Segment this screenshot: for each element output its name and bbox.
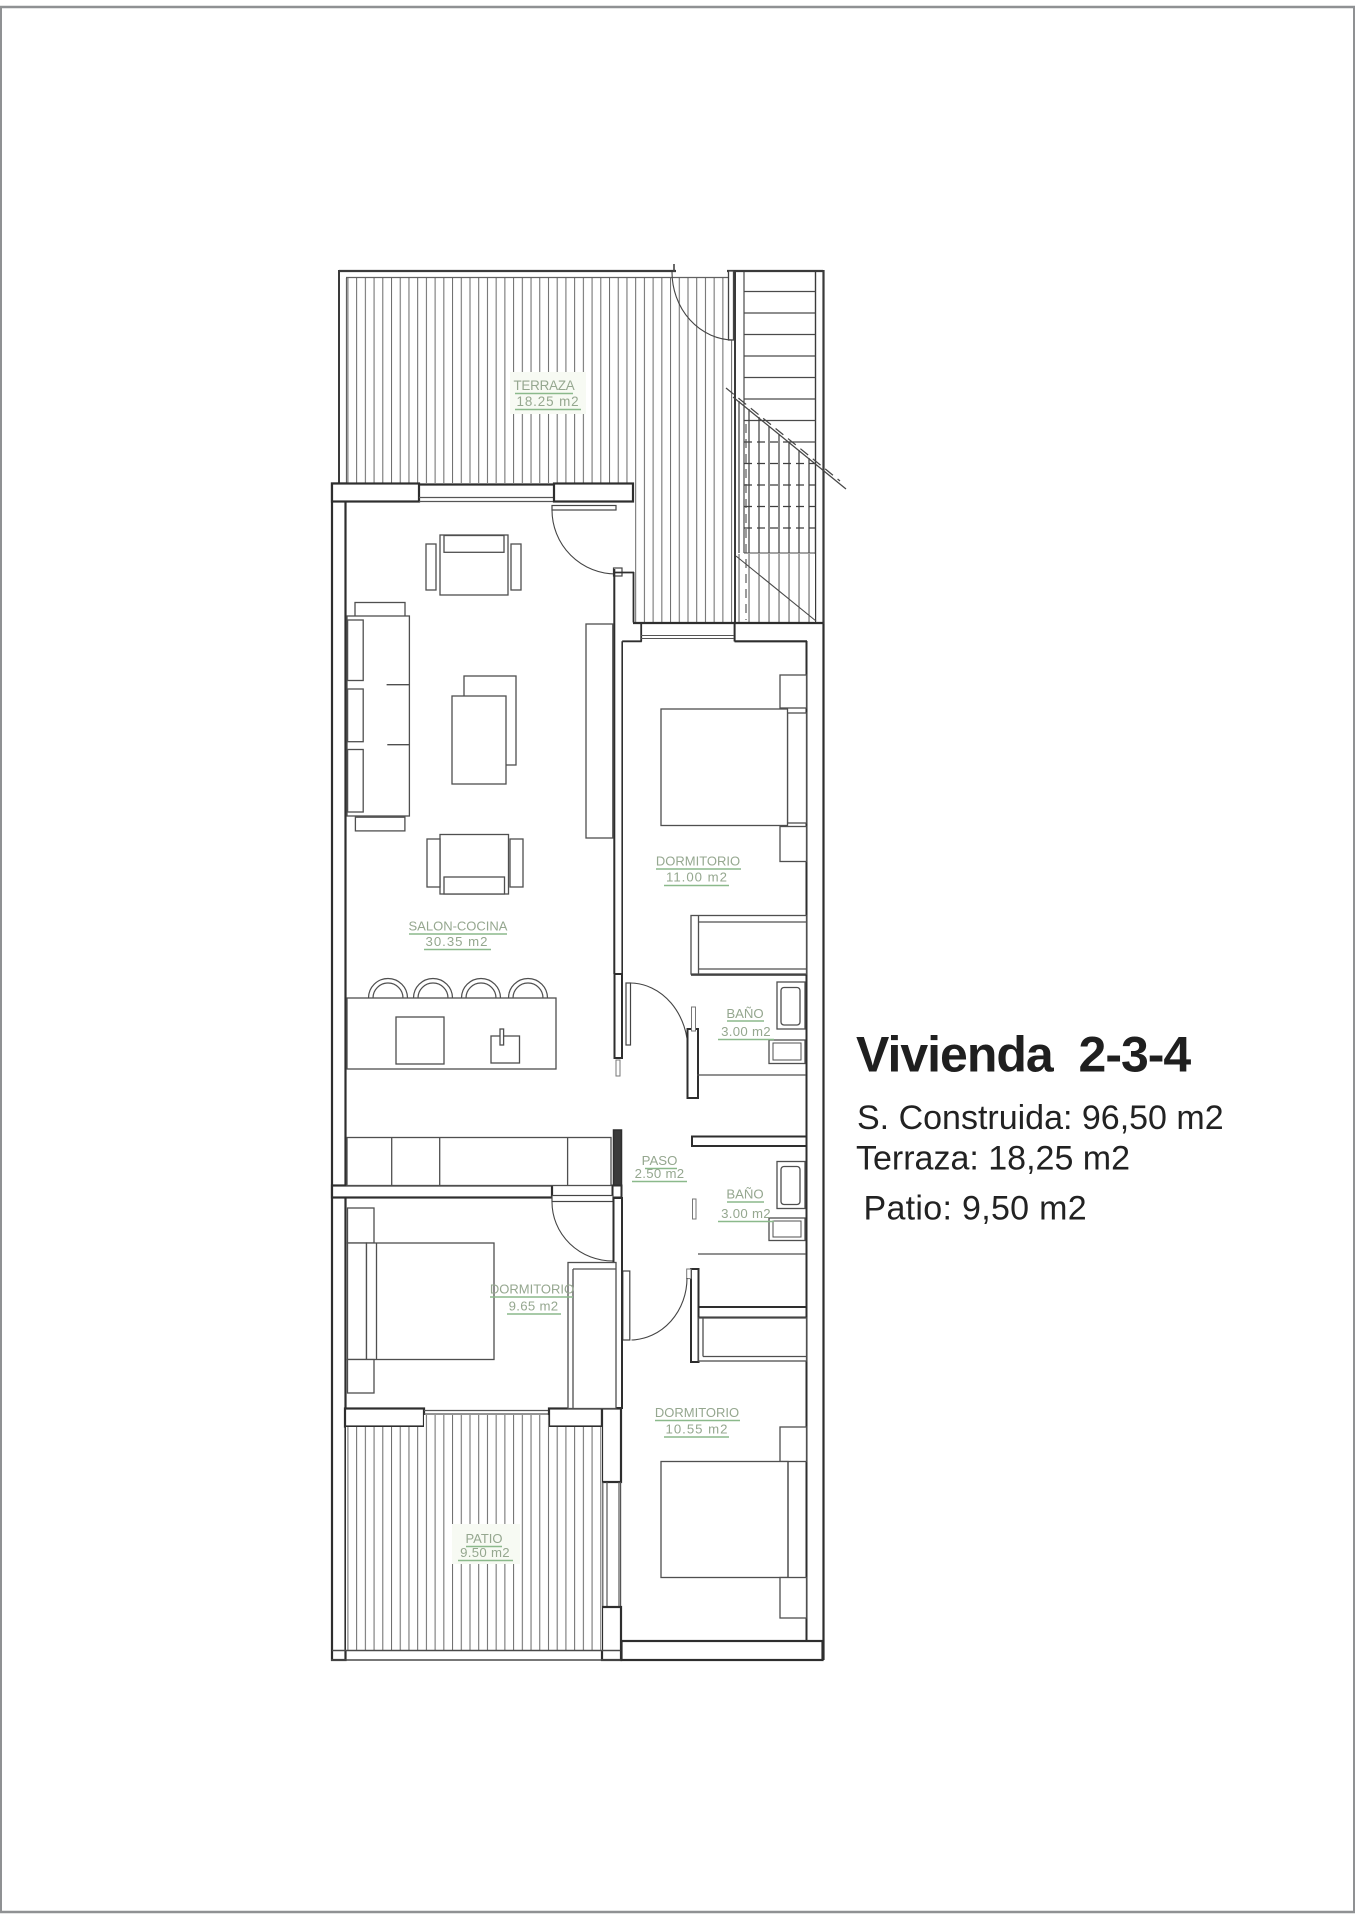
- svg-text:Patio: 9,50 m2: Patio: 9,50 m2: [864, 1190, 1087, 1228]
- svg-text:2.50 m2: 2.50 m2: [635, 1166, 685, 1181]
- svg-text:PATIO: PATIO: [465, 1531, 502, 1546]
- svg-text:11.00 m2: 11.00 m2: [666, 870, 728, 885]
- svg-text:S. Construida: 96,50 m2: S. Construida: 96,50 m2: [857, 1099, 1224, 1137]
- svg-text:3.00 m2: 3.00 m2: [721, 1024, 771, 1039]
- svg-text:TERRAZA: TERRAZA: [513, 378, 574, 393]
- svg-text:3.00 m2: 3.00 m2: [721, 1206, 771, 1221]
- svg-text:30.35 m2: 30.35 m2: [426, 934, 489, 949]
- svg-text:9.65 m2: 9.65 m2: [509, 1299, 559, 1314]
- svg-text:DORMITORIO: DORMITORIO: [490, 1282, 574, 1297]
- svg-text:SALON-COCINA: SALON-COCINA: [409, 919, 508, 934]
- svg-text:BAÑO: BAÑO: [726, 1006, 763, 1021]
- svg-text:Vivienda 2-3-4: Vivienda 2-3-4: [856, 1027, 1191, 1083]
- svg-text:Terraza: 18,25 m2: Terraza: 18,25 m2: [856, 1140, 1130, 1178]
- svg-text:BAÑO: BAÑO: [726, 1187, 763, 1202]
- svg-text:10.55 m2: 10.55 m2: [666, 1422, 729, 1437]
- svg-text:DORMITORIO: DORMITORIO: [655, 1405, 739, 1420]
- svg-text:DORMITORIO: DORMITORIO: [656, 854, 740, 869]
- svg-text:9.50 m2: 9.50 m2: [460, 1545, 510, 1560]
- svg-text:18.25 m2: 18.25 m2: [516, 394, 579, 409]
